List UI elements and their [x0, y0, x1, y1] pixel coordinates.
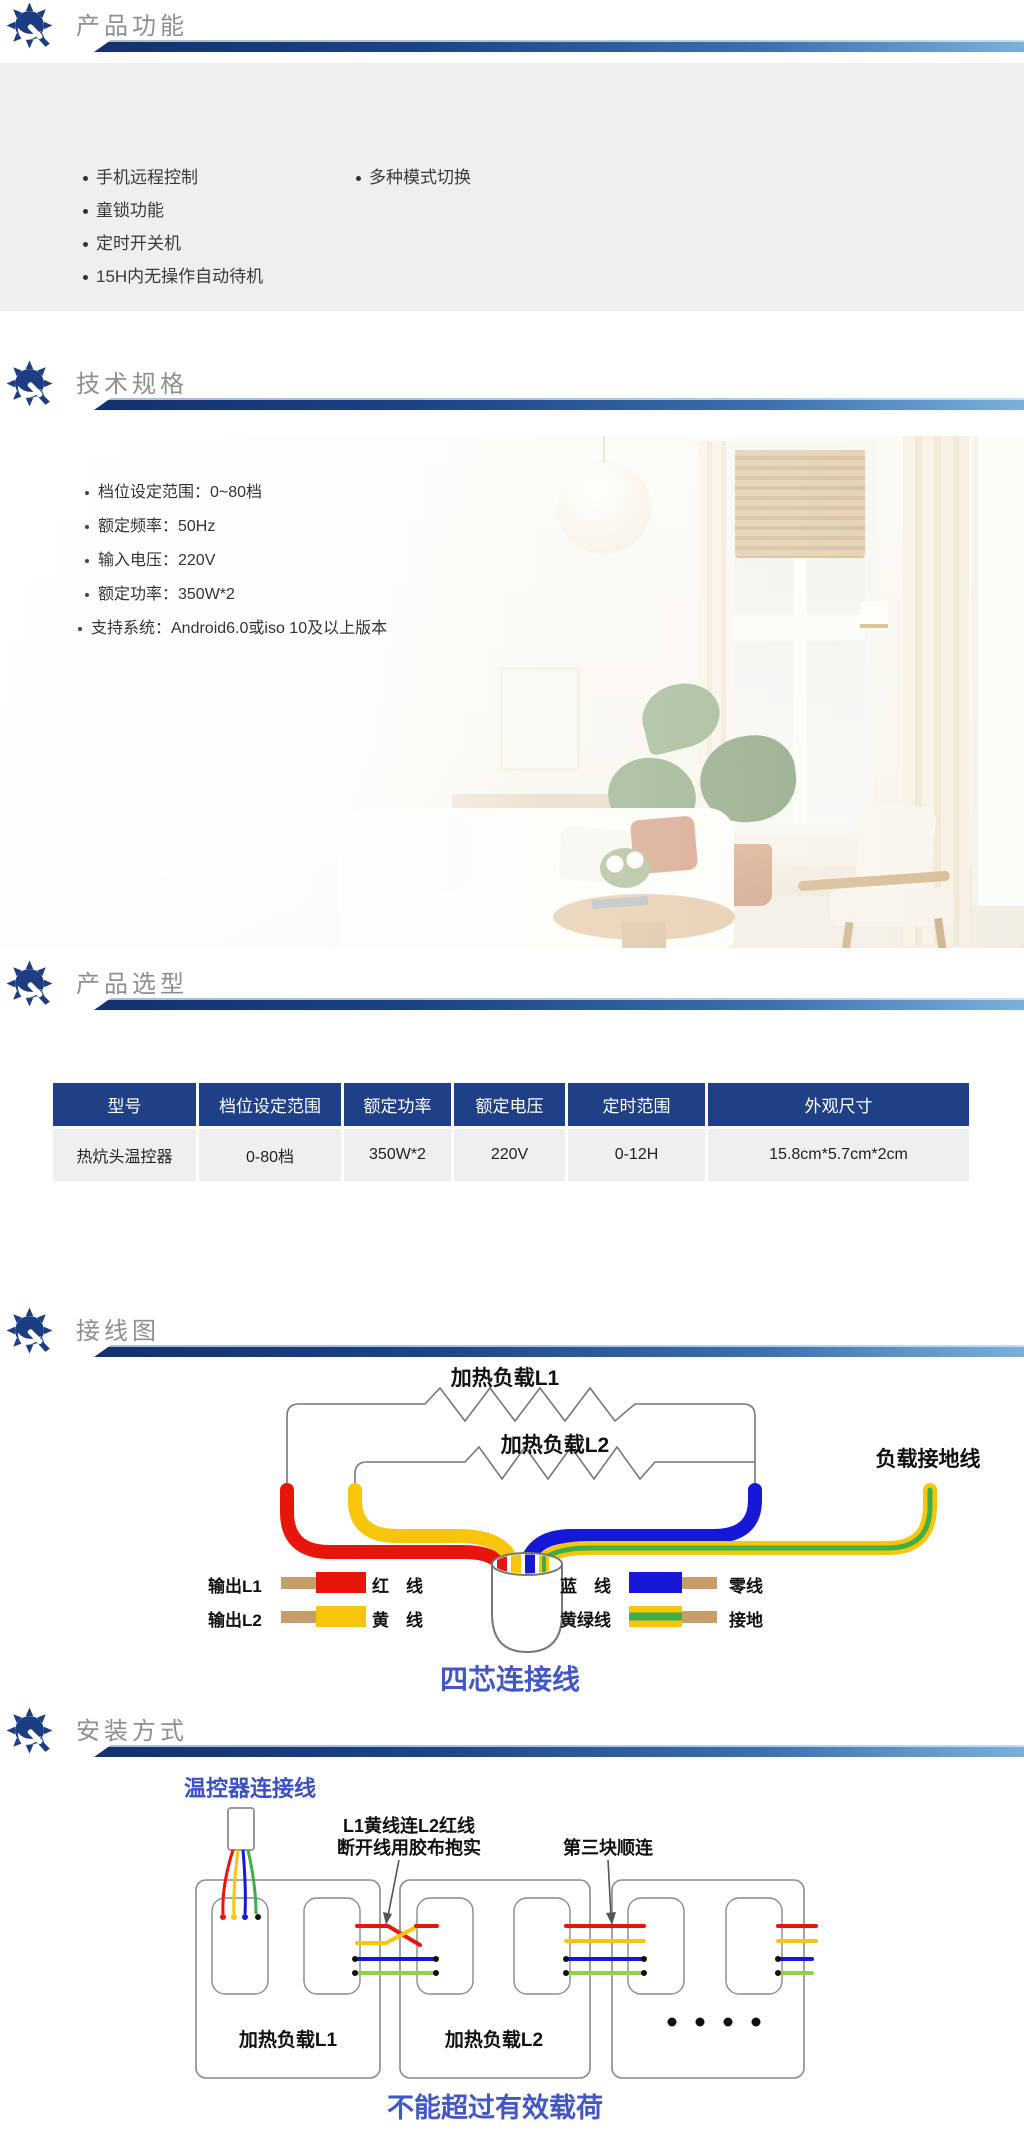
- brand-sun-icon: [6, 1307, 53, 1354]
- spec-label: 额定频率：50Hz: [98, 518, 215, 535]
- section-divider-bar: [94, 40, 1024, 52]
- wire-terminal-dot: [775, 1956, 781, 1962]
- col-header: 额定电压: [454, 1083, 565, 1126]
- legend-earth-label: 接地: [729, 1606, 763, 1631]
- section-title: 安装方式: [76, 1711, 188, 1746]
- wire-terminal-dot: [641, 1970, 647, 1976]
- ellipsis-dot: [668, 2018, 677, 2027]
- feature-label: 多种模式切换: [369, 168, 471, 187]
- section-divider-bar: [94, 398, 1024, 410]
- section-title: 接线图: [76, 1311, 160, 1346]
- bullet-icon: [85, 491, 89, 495]
- brand-sun-icon: [6, 360, 53, 407]
- note1-line2: 断开线用胶布抱实: [337, 1837, 481, 1858]
- bullet-icon: [78, 627, 82, 631]
- mat1-label: 加热负载L1: [238, 2028, 338, 2051]
- section-divider-bar: [94, 1345, 1024, 1357]
- bullet-icon: [356, 176, 361, 181]
- col-header: 档位设定范围: [199, 1083, 341, 1126]
- terminal-pad: [212, 1898, 268, 1994]
- section-header-selection: 产品选型: [0, 958, 1024, 1016]
- legend-yellow-green-label: 黄绿线: [560, 1606, 611, 1631]
- table-header-row: 型号 档位设定范围 额定功率 额定电压 定时范围 外观尺寸: [53, 1083, 969, 1126]
- red-wire-chip: [316, 1572, 366, 1593]
- section-header-specs: 技术规格: [0, 358, 1024, 416]
- yellow-wire-chip: [316, 1606, 366, 1627]
- legend-neutral-label: 零线: [729, 1572, 763, 1597]
- legend-out2-label: 输出L2: [208, 1606, 262, 1631]
- spec-label: 支持系统：Android6.0或iso 10及以上版本: [91, 620, 387, 637]
- section-title: 技术规格: [76, 364, 188, 399]
- wiring-caption: 四芯连接线: [380, 1658, 640, 1698]
- section-header-install: 安装方式: [0, 1705, 1024, 1763]
- wire-terminal-dot: [220, 1914, 226, 1920]
- spec-item: 支持系统：Android6.0或iso 10及以上版本: [78, 614, 387, 638]
- wire-terminal-dot: [352, 1956, 358, 1962]
- spec-item: 额定频率：50Hz: [85, 512, 215, 536]
- bullet-icon: [83, 176, 88, 181]
- col-header: 型号: [53, 1083, 196, 1126]
- spec-item: 输入电压：220V: [85, 546, 215, 570]
- feature-item: 定时开关机: [83, 229, 181, 254]
- load1-label: 加热负载L1: [450, 1366, 560, 1390]
- cable-body: [492, 1564, 562, 1652]
- red-wire: [287, 1490, 501, 1566]
- wire-terminal-dot: [433, 1970, 439, 1976]
- legend-blue-label: 蓝 线: [560, 1572, 611, 1597]
- wire-terminal-dot: [641, 1956, 647, 1962]
- terminal-pad: [628, 1898, 684, 1994]
- feature-item: 多种模式切换: [356, 163, 471, 188]
- bullet-icon: [83, 275, 88, 280]
- ellipsis-dot: [752, 2018, 761, 2027]
- note2-label: 第三块顺连: [563, 1837, 654, 1858]
- cell-range: 0-80档: [199, 1129, 341, 1181]
- feature-item: 15H内无操作自动待机: [83, 262, 263, 287]
- ellipsis-dot: [724, 2018, 733, 2027]
- bullet-icon: [83, 209, 88, 214]
- terminal-pad: [417, 1898, 473, 1994]
- feature-label: 手机远程控制: [96, 168, 198, 187]
- section-header-wiring: 接线图: [0, 1305, 1024, 1363]
- spec-label: 额定功率：350W*2: [98, 586, 235, 603]
- brand-sun-icon: [6, 960, 53, 1007]
- thermostat-connector: [228, 1808, 254, 1850]
- note1-arrow: [388, 1860, 399, 1916]
- feature-item: 手机远程控制: [83, 163, 198, 188]
- note2-arrow: [608, 1860, 611, 1916]
- section-title: 产品选型: [76, 964, 188, 999]
- wire-terminal-dot: [231, 1914, 237, 1920]
- installation-diagram: 温控器连接线 L1黄线连L2红线 断开线用胶布抱实 第三块顺连 加热负载L1 加…: [0, 1768, 1024, 2083]
- cell-timer: 0-12H: [568, 1129, 705, 1181]
- section-divider-bar: [94, 1745, 1024, 1757]
- section-header-features: 产品功能: [0, 0, 1024, 58]
- bullet-icon: [85, 559, 89, 563]
- legend-yellow-label: 黄 线: [372, 1606, 423, 1631]
- bullet-icon: [85, 525, 89, 529]
- wiring-diagram: 加热负载L1 加热负载L2 负载接地线: [0, 1358, 1024, 1660]
- bullet-icon: [83, 242, 88, 247]
- section-title: 产品功能: [76, 6, 188, 41]
- wire-terminal-dot: [563, 1970, 569, 1976]
- cell-voltage: 220V: [454, 1129, 565, 1181]
- note1-arrowhead: [383, 1912, 392, 1925]
- mat2-label: 加热负载L2: [444, 2028, 543, 2051]
- copper-chip: [682, 1577, 717, 1589]
- copper-chip: [682, 1611, 717, 1623]
- product-detail-page: 产品功能 手机远程控制 童锁功能 定时开关机 15H内无操作自动待机 多种模式切…: [0, 0, 1024, 2150]
- col-header: 定时范围: [568, 1083, 705, 1126]
- feature-label: 童锁功能: [96, 201, 164, 220]
- note1-line1: L1黄线连L2红线: [343, 1815, 475, 1836]
- spec-label: 输入电压：220V: [98, 552, 215, 569]
- spec-item: 额定功率：350W*2: [85, 580, 235, 604]
- section-divider-bar: [94, 998, 1024, 1010]
- feature-item: 童锁功能: [83, 196, 164, 221]
- wire-terminal-dot: [563, 1956, 569, 1962]
- selection-table: 型号 档位设定范围 额定功率 额定电压 定时范围 外观尺寸 热炕头温控器 0-8…: [50, 1080, 972, 1184]
- cell-size: 15.8cm*5.7cm*2cm: [708, 1129, 969, 1181]
- spec-item: 档位设定范围：0~80档: [85, 478, 262, 502]
- wire-terminal-dot: [433, 1956, 439, 1962]
- cell-power: 350W*2: [344, 1129, 451, 1181]
- feature-label: 15H内无操作自动待机: [96, 267, 263, 286]
- col-header: 外观尺寸: [708, 1083, 969, 1126]
- bullet-icon: [85, 593, 89, 597]
- copper-chip: [281, 1611, 316, 1623]
- wire-terminal-dot: [255, 1914, 261, 1920]
- legend-out1-label: 输出L1: [208, 1572, 262, 1597]
- connector-label: 温控器连接线: [184, 1776, 316, 1801]
- brand-sun-icon: [6, 2, 53, 49]
- blue-wire-chip: [629, 1572, 682, 1593]
- wire-terminal-dot: [242, 1914, 248, 1920]
- feature-label: 定时开关机: [96, 234, 181, 253]
- copper-chip: [281, 1577, 316, 1589]
- wire-terminal-dot: [352, 1970, 358, 1976]
- cell-model: 热炕头温控器: [53, 1129, 196, 1181]
- load2-label: 加热负载L2: [500, 1433, 610, 1457]
- terminal-pad: [726, 1898, 782, 1994]
- yellow-green-wire-chip: [629, 1606, 682, 1627]
- table-row: 热炕头温控器 0-80档 350W*2 220V 0-12H 15.8cm*5.…: [53, 1129, 969, 1181]
- legend-red-label: 红 线: [372, 1572, 423, 1597]
- brand-sun-icon: [6, 1707, 53, 1754]
- col-header: 额定功率: [344, 1083, 451, 1126]
- spec-label: 档位设定范围：0~80档: [98, 484, 262, 501]
- install-caption: 不能超过有效载荷: [245, 2086, 745, 2125]
- terminal-pad: [304, 1898, 360, 1994]
- terminal-pad: [514, 1898, 570, 1994]
- wire-terminal-dot: [775, 1970, 781, 1976]
- features-panel: 手机远程控制 童锁功能 定时开关机 15H内无操作自动待机 多种模式切换: [0, 63, 1024, 311]
- ground-wire-label: 负载接地线: [876, 1447, 981, 1471]
- ellipsis-dot: [696, 2018, 705, 2027]
